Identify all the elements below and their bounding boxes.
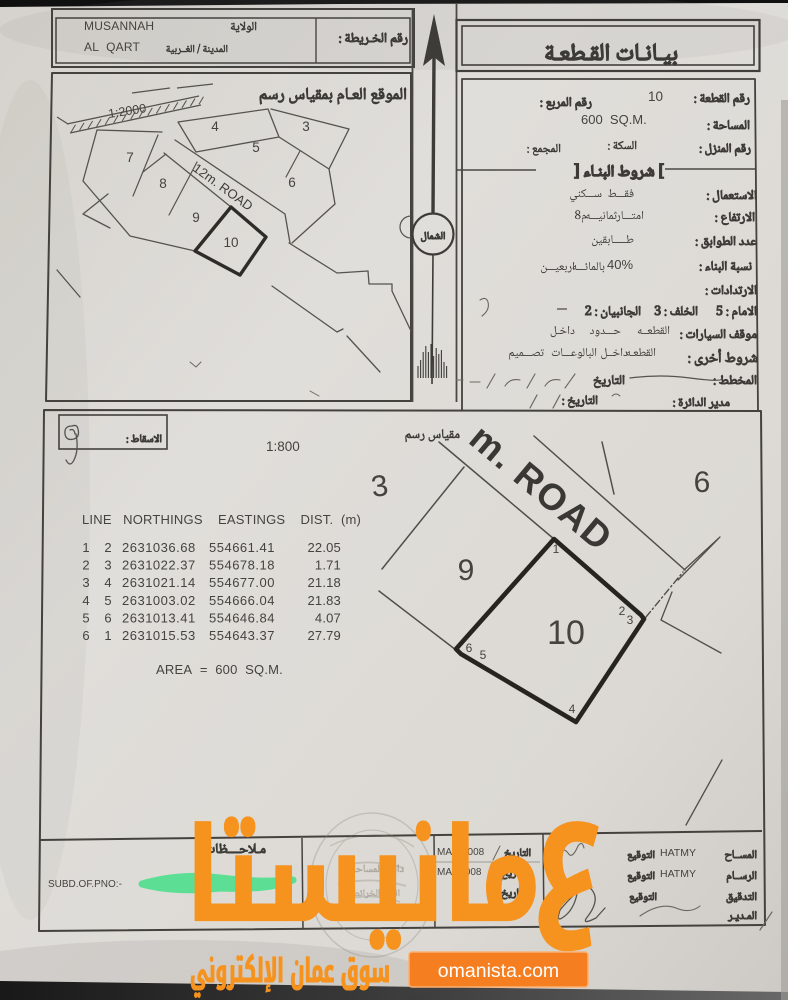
svg-text:4: 4 — [82, 593, 89, 608]
svg-text:10: 10 — [648, 89, 663, 104]
svg-text:MUSANNAH: MUSANNAH — [84, 19, 154, 33]
svg-text:1.71: 1.71 — [315, 558, 341, 573]
svg-text:22.05: 22.05 — [307, 540, 341, 555]
svg-text:6: 6 — [288, 175, 296, 190]
svg-text:27.79: 27.79 — [307, 628, 341, 643]
svg-text:1: 1 — [82, 540, 89, 555]
svg-text:40%: 40% — [607, 257, 633, 272]
svg-text:554677.00: 554677.00 — [209, 575, 275, 590]
svg-text:4: 4 — [104, 575, 111, 590]
svg-text:omanista.com: omanista.com — [438, 960, 559, 982]
svg-text:7: 7 — [126, 150, 134, 165]
svg-text:9: 9 — [458, 554, 475, 587]
svg-text:3: 3 — [104, 558, 111, 573]
svg-text:5: 5 — [82, 610, 89, 625]
svg-text:3: 3 — [627, 613, 634, 627]
svg-text:AL QART: AL QART — [84, 40, 141, 54]
svg-text:2631015.53: 2631015.53 — [122, 628, 196, 643]
svg-text:4.07: 4.07 — [315, 610, 341, 625]
svg-text:6: 6 — [694, 466, 711, 499]
svg-text:4: 4 — [211, 119, 219, 134]
svg-text:1: 1 — [553, 542, 560, 556]
svg-text:600 SQ.M.: 600 SQ.M. — [581, 112, 647, 127]
svg-text:21.18: 21.18 — [307, 575, 341, 590]
svg-text:HATMY: HATMY — [660, 847, 696, 859]
svg-text:6: 6 — [82, 628, 89, 643]
svg-text:5: 5 — [480, 648, 487, 662]
svg-text:10: 10 — [547, 614, 585, 652]
svg-text:6: 6 — [104, 610, 111, 625]
svg-text:8: 8 — [159, 176, 167, 191]
svg-text:554666.04: 554666.04 — [209, 593, 275, 608]
svg-text:2: 2 — [82, 558, 89, 573]
svg-text:3: 3 — [82, 575, 89, 590]
svg-text:6: 6 — [466, 641, 473, 655]
svg-text:554661.41: 554661.41 — [209, 540, 275, 555]
svg-text:554646.84: 554646.84 — [209, 610, 275, 625]
svg-text:21.83: 21.83 — [307, 593, 341, 608]
svg-text:2631022.37: 2631022.37 — [122, 558, 196, 573]
svg-text:554678.18: 554678.18 — [209, 558, 275, 573]
svg-text:554643.37: 554643.37 — [209, 628, 275, 643]
svg-text:4: 4 — [569, 702, 576, 716]
svg-text:10: 10 — [223, 235, 238, 250]
svg-text:1:800: 1:800 — [266, 439, 300, 454]
svg-text:2631021.14: 2631021.14 — [122, 575, 196, 590]
svg-text:2: 2 — [619, 604, 626, 618]
svg-text:HATMY: HATMY — [660, 868, 696, 880]
svg-text:SUBD.OF.PNO:-: SUBD.OF.PNO:- — [48, 879, 122, 890]
svg-text:2631013.41: 2631013.41 — [122, 610, 196, 625]
svg-text:AREA = 600 SQ.M.: AREA = 600 SQ.M. — [156, 662, 283, 677]
svg-text:2: 2 — [104, 540, 111, 555]
svg-text:3: 3 — [302, 119, 310, 134]
svg-text:2631036.68: 2631036.68 — [122, 540, 196, 555]
svg-text:LINE NORTHINGS EASTINGS: LINE NORTHINGS EASTINGS DIST. (m) — [82, 512, 361, 527]
svg-text:1: 1 — [104, 628, 111, 643]
svg-text:5: 5 — [252, 140, 260, 155]
svg-text:5: 5 — [104, 593, 111, 608]
svg-text:9: 9 — [192, 210, 200, 225]
svg-text:2631003.02: 2631003.02 — [122, 593, 196, 608]
